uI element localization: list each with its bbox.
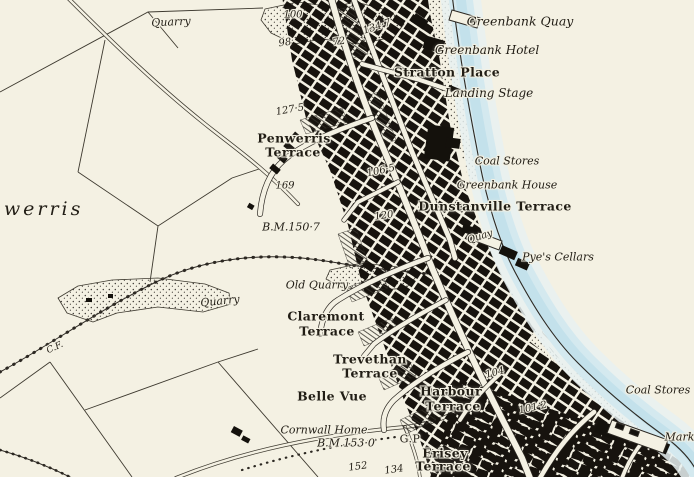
map-label-quarry-left: Quarry: [200, 292, 241, 309]
map-label-claremont-terrace-1: Claremont: [287, 309, 364, 324]
map-label-cornwall-home: Cornwall Home: [280, 424, 367, 437]
map-label-coal-stores-lower: Coal Stores: [626, 384, 691, 397]
map-label-pyes-cellars: Pye's Cellars: [522, 251, 594, 264]
map-label-spot-72: 72: [332, 36, 346, 49]
map-label-spot-98: 98: [278, 37, 292, 50]
map-label-gp-guide-post: G.P: [400, 433, 421, 446]
map-label-stratton-place: Stratton Place: [394, 65, 500, 80]
map-label-greenbank-quay: Greenbank Quay: [467, 14, 574, 29]
map-label-spot-152: 152: [348, 460, 368, 474]
map-labels: Quarry100134·79872Greenbank QuayGreenban…: [0, 0, 694, 477]
map-label-quarry-top: Quarry: [151, 14, 191, 29]
map-label-spot-134: 134: [384, 463, 404, 477]
map-label-spot-104: 104: [484, 365, 505, 381]
map-label-bm-153-0: B.M.153·0: [317, 437, 375, 450]
map-label-spot-106-5: 106·5: [366, 163, 396, 180]
map-label-trevethan-terrace-2: Terrace: [342, 366, 397, 381]
map-label-spot-134-7: 134·7: [362, 17, 393, 36]
map-label-bm-150-7: B.M.150·7: [262, 221, 320, 234]
map-label-spot-127-5: 127·5: [275, 102, 305, 118]
map-label-greenbank-hotel: Greenbank Hotel: [435, 43, 539, 57]
map-label-claremont-terrace-2: Terrace: [299, 324, 354, 339]
map-label-landing-stage: Landing Stage: [445, 86, 534, 100]
map-label-cf-boundary: C.F.: [45, 340, 65, 356]
map-label-spot-169: 169: [275, 181, 294, 192]
map-label-trevethan-terrace-1: Trevethan: [333, 352, 407, 367]
map-label-quay-mid: Quay: [466, 228, 494, 247]
map-label-penwerris-terrace-1: Penwerris: [257, 131, 330, 146]
map-label-spot-101-2: 101·2: [518, 400, 548, 417]
map-label-market: Market: [665, 431, 694, 444]
map-label-spot-120: 120: [374, 209, 394, 223]
map-label-coal-stores-upper: Coal Stores: [475, 155, 540, 168]
map-label-old-quarry: Old Quarry: [286, 279, 348, 292]
map-label-greenbank-house: Greenbank House: [457, 179, 557, 192]
map-label-erisey-terrace-2: Terrace: [415, 459, 470, 474]
map-label-harbour-terrace-1: Harbour: [420, 384, 482, 399]
map-label-penwerris-district: nwerris: [0, 198, 83, 220]
map-label-spot-100: 100: [283, 10, 302, 21]
map-label-belle-vue: Belle Vue: [297, 389, 367, 404]
map-label-dunstanville-terrace: Dunstanville Terrace: [418, 199, 571, 214]
map-canvas: Quarry100134·79872Greenbank QuayGreenban…: [0, 0, 694, 477]
map-label-harbour-terrace-2: Terrace: [425, 399, 480, 414]
map-label-penwerris-terrace-2: Terrace: [265, 145, 320, 160]
